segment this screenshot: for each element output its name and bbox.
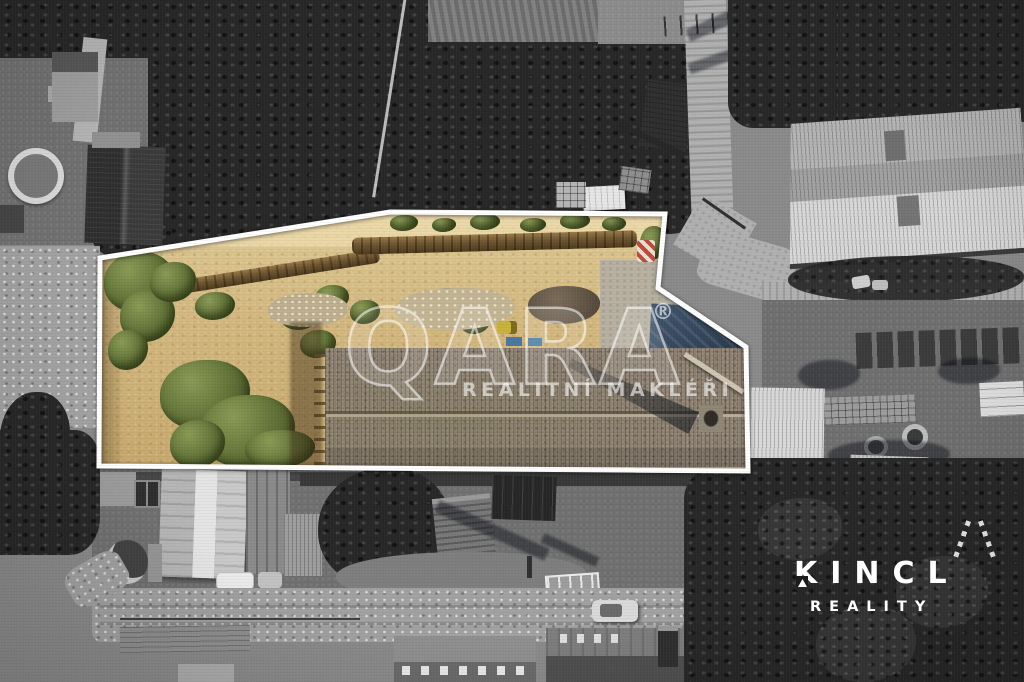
agency-logo: KINCL REALITY <box>780 552 980 632</box>
agency-name: KINCL <box>794 556 960 591</box>
agency-tagline: REALITY <box>810 599 933 615</box>
aerial-photo: QARA ® REALITNÍ MAKLÉŘI KINCL REALITY <box>0 0 1024 682</box>
